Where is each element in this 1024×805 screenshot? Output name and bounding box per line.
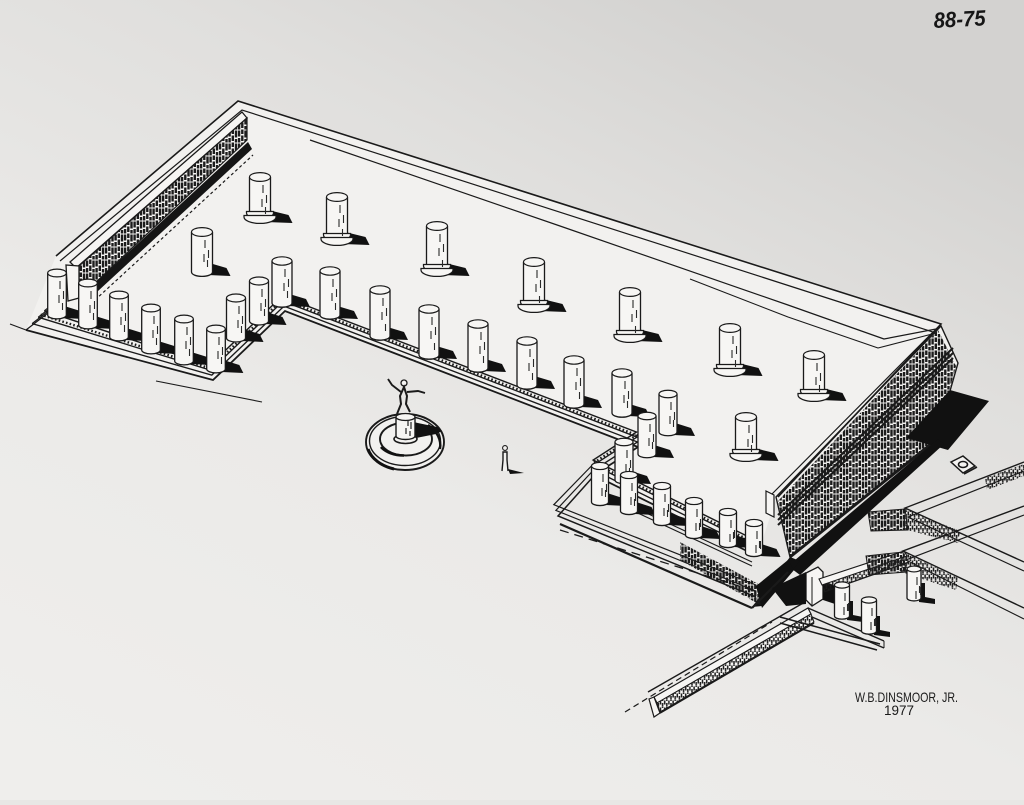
svg-text:1977: 1977	[884, 702, 914, 718]
svg-text:88-75: 88-75	[933, 5, 987, 33]
